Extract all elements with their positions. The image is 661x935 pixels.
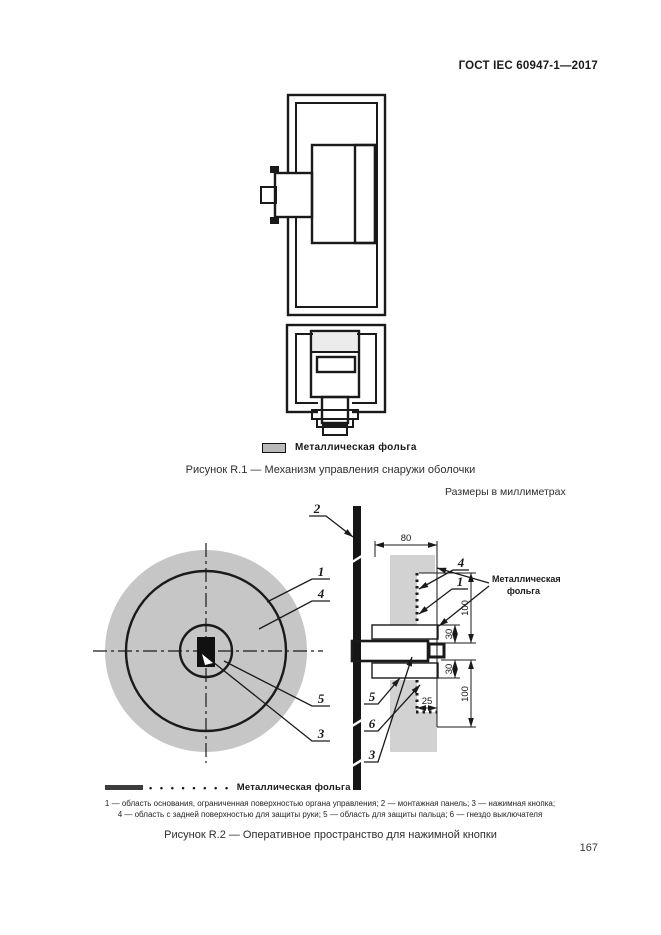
protection-band-upper [372, 625, 438, 639]
housing-flange-bottom [270, 217, 279, 224]
label-section-1: 1 [457, 574, 464, 589]
foil-callout-line1: Металлическая [492, 574, 561, 584]
label-section-5: 5 [369, 689, 376, 704]
mechanism-block [312, 145, 375, 243]
foil-zone-upper [390, 555, 435, 625]
document-page: ГОСТ IEC 60947-1—2017 [0, 0, 661, 935]
figure-r2-caption: Рисунок R.2 — Оперативное пространство д… [0, 829, 661, 841]
foil-zone-lower [390, 680, 437, 752]
pushbutton-cap-side [261, 187, 276, 203]
mechanism-slot [317, 357, 355, 372]
enclosure-side-view [261, 95, 385, 315]
figure-r1-caption: Рисунок R.1 — Механизм управления снаруж… [0, 464, 661, 476]
label-section-4: 4 [457, 555, 465, 570]
label-circle-4: 4 [317, 586, 325, 601]
leader-section-1 [419, 589, 452, 614]
label-circle-3: 3 [317, 726, 325, 741]
page-number: 167 [580, 842, 598, 854]
foil-swatch [262, 443, 286, 453]
enclosure-outer-wall [288, 95, 385, 315]
label-section-3: 3 [368, 747, 376, 762]
label-panel-2: 2 [313, 501, 321, 516]
enclosure-inner-cavity [296, 103, 377, 307]
figure-r2-legend-label: Металлическая фольга [237, 782, 351, 793]
standard-header: ГОСТ IEC 60947-1—2017 [459, 60, 598, 72]
foil-callout-line2: фольга [507, 586, 541, 596]
figure-r1-legend-label: Металлическая фольга [295, 442, 417, 453]
wall-opening [284, 172, 298, 218]
figure-r1-legend: Металлическая фольга [262, 442, 417, 453]
dim-80: 80 [401, 533, 412, 544]
dim-30-upper: 30 [444, 629, 455, 640]
leader-panel-2 [309, 516, 353, 537]
label-circle-5: 5 [318, 691, 325, 706]
protection-band-lower [372, 663, 438, 678]
foil-callout-leader-2 [439, 586, 489, 626]
footnote-line-2: 4 — область с задней поверхностью для за… [30, 810, 630, 819]
figure-r1-drawing [250, 88, 420, 448]
front-view: 1 4 5 3 [93, 543, 330, 763]
dim-25: 25 [422, 696, 433, 707]
mechanism-body-top [313, 333, 357, 352]
label-section-6: 6 [369, 716, 376, 731]
units-note: Размеры в миллиметрах [445, 486, 566, 498]
foil-line-symbol [105, 785, 143, 790]
dim-100-lower: 100 [460, 686, 471, 702]
footnote-line-1: 1 — область основания, ограниченная пове… [30, 799, 630, 808]
enclosure-end-view [287, 325, 385, 435]
mechanism-block-back [355, 145, 375, 243]
mounting-panel [353, 506, 361, 790]
label-circle-1: 1 [318, 564, 325, 579]
figure-r2-drawing: 1 4 5 3 [55, 498, 610, 793]
pushbutton-section [352, 641, 428, 661]
housing-flange-top [270, 166, 279, 173]
figure-r2-legend: • • • • • • • • Металлическая фольга [105, 782, 351, 793]
section-view: 80 100 30 30 100 25 2 4 [309, 501, 561, 790]
foil-dots-symbol: • • • • • • • • [149, 785, 231, 791]
dim-30-lower: 30 [444, 664, 455, 675]
